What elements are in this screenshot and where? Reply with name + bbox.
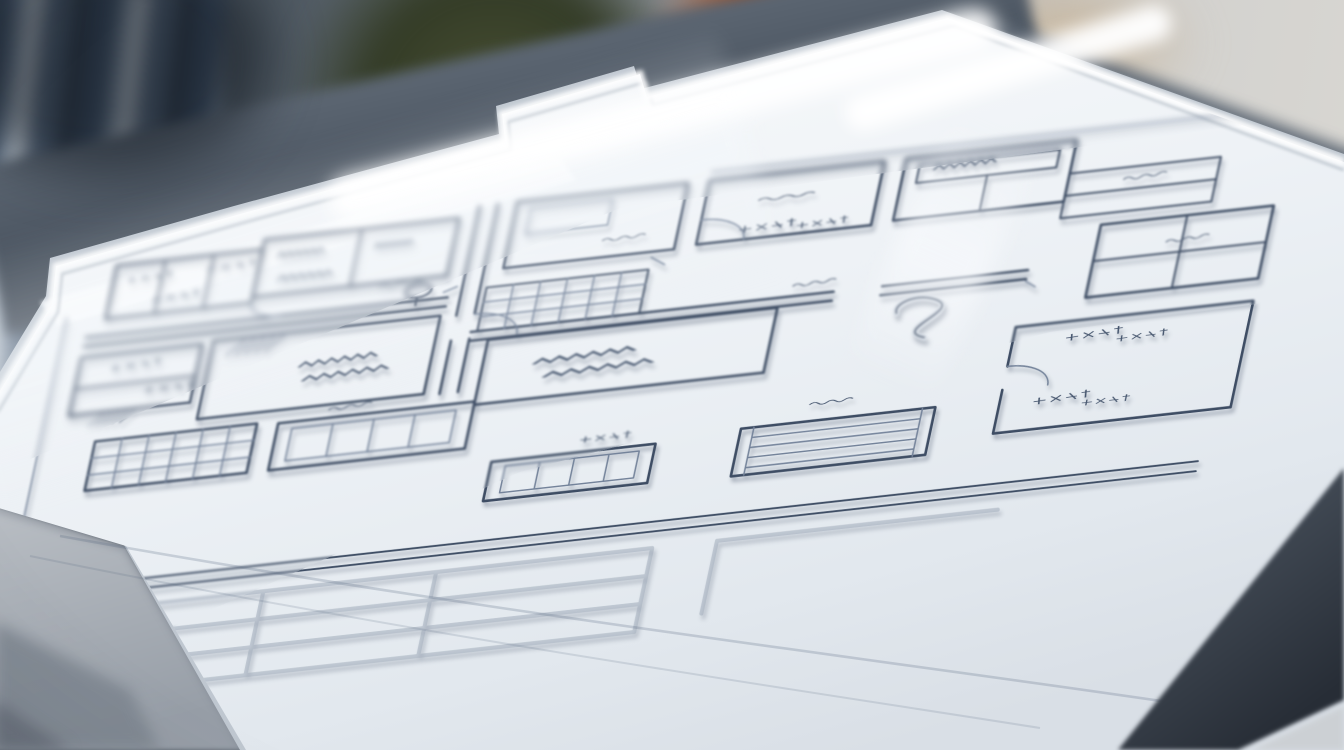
scene <box>0 0 1344 750</box>
drafting-board-artwork <box>0 0 1344 750</box>
drafting-board <box>0 10 1344 750</box>
